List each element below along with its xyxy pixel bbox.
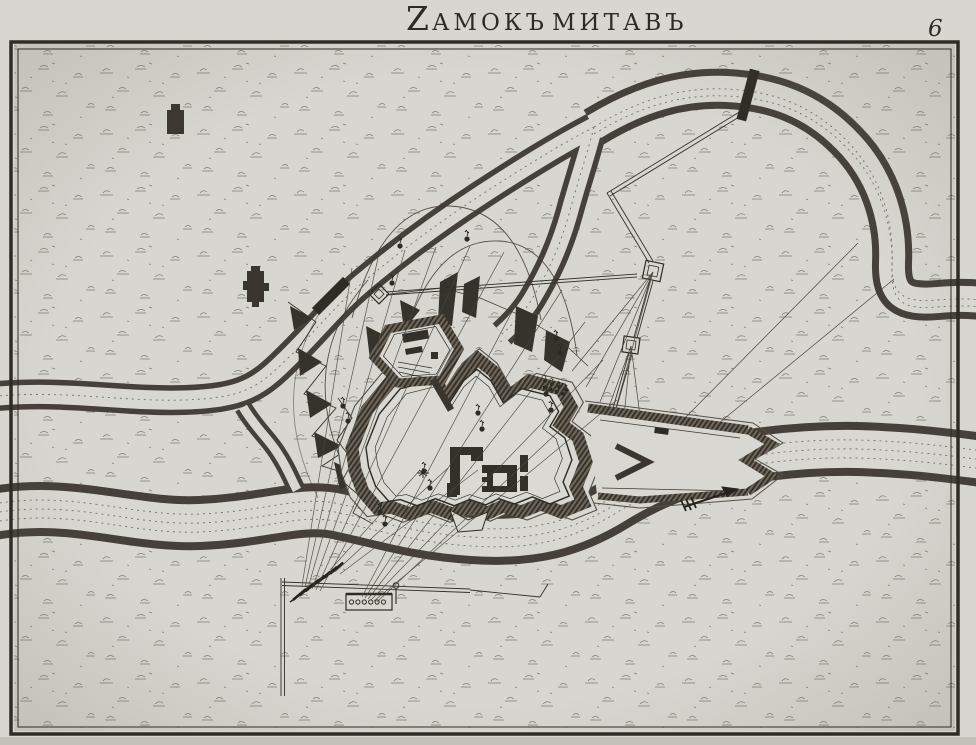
title-word1: АМОКЪ	[432, 10, 548, 36]
paper-edge	[0, 737, 976, 745]
map-field	[0, 44, 976, 731]
title-initial: Z	[406, 0, 432, 38]
engraved-map-plate: Z АМОКЪ МИТАВЪ 6	[0, 0, 976, 745]
title-word2: МИТАВЪ	[552, 10, 688, 36]
tone-vignette	[14, 44, 955, 731]
map-canvas: Z АМОКЪ МИТАВЪ 6	[0, 0, 976, 745]
plate-page-number: 6	[928, 16, 943, 42]
